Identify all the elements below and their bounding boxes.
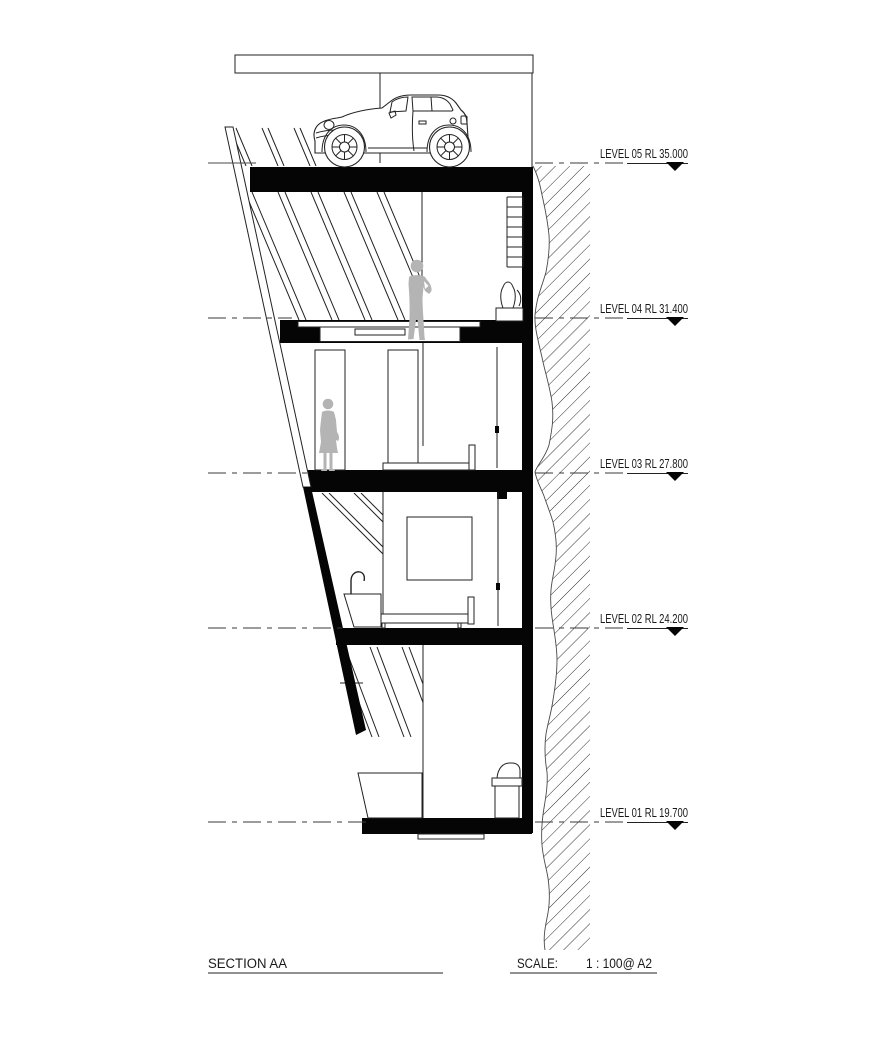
right-wall [522,167,533,833]
level-04-label: LEVEL 04 RL 31.400 [600,302,688,316]
level05-slab [250,167,532,192]
ladder [507,197,523,267]
toilet-fixture [492,763,522,818]
datum-triangle-icon [666,317,684,326]
picture-frame [407,517,472,580]
level01-slab [362,818,532,834]
glazing-mullions-top [230,128,316,166]
datum-lines-left [208,163,368,822]
level-03-label: LEVEL 03 RL 27.800 [600,457,688,471]
level-05-label: LEVEL 05 RL 35.000 [600,147,688,161]
ground-hatch [533,166,590,950]
scale-value: 1 : 100@ A2 [586,956,652,971]
level03-slab [306,470,532,492]
level02-slab [336,628,532,645]
scale-label: SCALE: [517,956,558,971]
datum-triangle-icon [666,472,684,481]
basin-with-faucet [344,572,381,627]
level04-floor-finish [298,322,480,328]
datum-triangle-icon [666,162,684,171]
section-aa-drawing: LEVEL 05 RL 35.000 LEVEL 04 RL 31.400 LE… [0,0,880,1053]
slab-footing [418,834,484,839]
basin [344,594,381,627]
level-02-label: LEVEL 02 RL 24.200 [600,612,688,626]
datum-triangle-icon [666,627,684,636]
level-01-label: LEVEL 01 RL 19.700 [600,806,688,820]
bench-level01 [358,773,422,818]
datum-triangle-icon [666,821,684,830]
drawing-title: SECTION AA [208,956,287,971]
front-wheel [325,127,365,167]
section-drawing-sheet: LEVEL 05 RL 35.000 LEVEL 04 RL 31.400 LE… [0,0,880,1053]
structure-solid [250,167,533,839]
vase-on-pedestal [496,282,523,321]
bed-level02 [378,597,474,628]
rear-wheel [430,127,470,167]
faucet [351,572,364,594]
title-block: SECTION AA SCALE: 1 : 100@ A2 [208,956,657,973]
car [314,95,471,167]
